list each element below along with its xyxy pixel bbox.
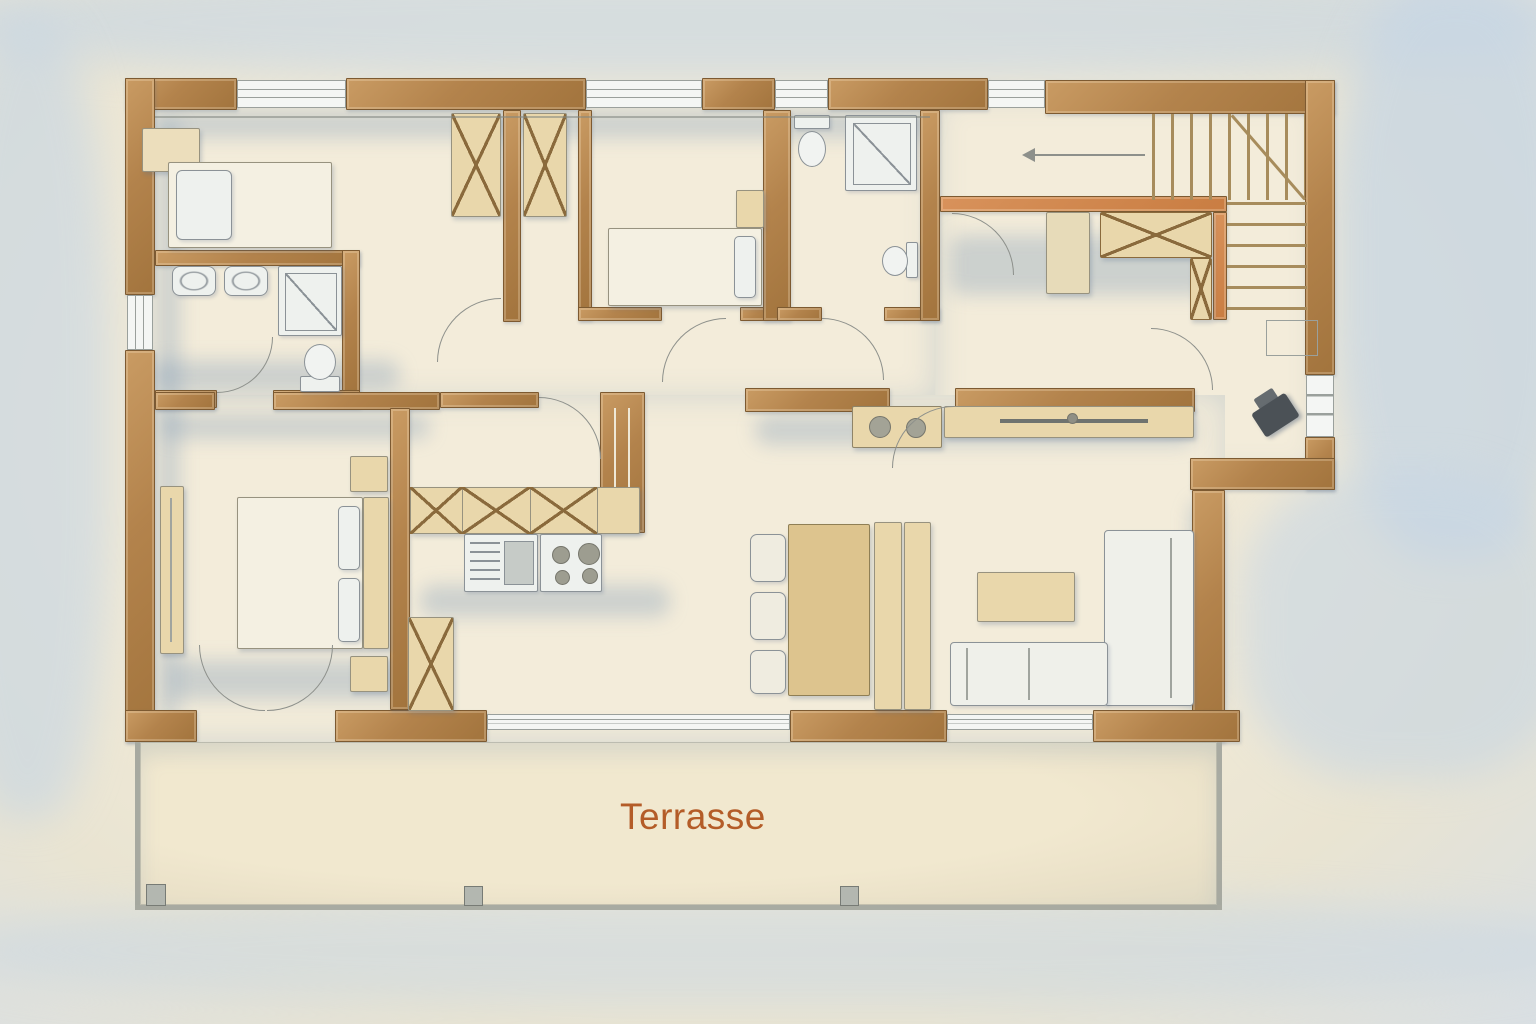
wall-bathroom2-bottom-a — [777, 307, 822, 321]
window-left — [127, 295, 153, 350]
floor-plan-canvas: Terrasse — [0, 0, 1536, 1024]
stair-direction-line — [1035, 154, 1145, 156]
sideboard-2 — [904, 522, 931, 710]
master-tv-board — [160, 486, 184, 654]
bath1-toilet-bowl — [304, 344, 336, 380]
master-tv-line — [170, 498, 172, 642]
bath1-sink-1 — [172, 266, 216, 296]
wall-exterior-left-2 — [125, 350, 155, 742]
wall-bedroom2-bathroom2 — [763, 110, 791, 321]
kitchen-upper-cabinet-2 — [462, 487, 531, 534]
wall-kitchen-top — [440, 392, 539, 408]
wash-shadow — [150, 360, 400, 390]
wall-master-top-b — [273, 392, 440, 410]
wardrobe-right — [523, 113, 567, 217]
wall-exterior-top-5 — [1045, 80, 1335, 114]
bedroom1-pillow — [176, 170, 232, 240]
stove-burner — [582, 568, 598, 584]
wall-exterior-right-3 — [1192, 490, 1225, 742]
wall-master-top-a — [155, 392, 215, 410]
sideboard-1 — [874, 522, 902, 710]
island-sink-1 — [869, 416, 891, 438]
tv-knob — [1067, 413, 1078, 424]
wall-closet-stub — [503, 110, 521, 322]
bedroom2-pillow — [734, 236, 756, 298]
stove-burner — [555, 570, 570, 585]
understair-closet — [1100, 212, 1212, 258]
wall-exterior-bottom-3 — [790, 710, 947, 742]
window-top-4 — [988, 80, 1045, 108]
understair-cabinet-narrow — [1190, 258, 1212, 320]
bedroom2-nightstand — [736, 190, 764, 228]
wall-accent-stair-vertical — [1213, 212, 1227, 320]
kitchen-upper-cabinet-1 — [410, 487, 463, 534]
bath1-sink-2 — [224, 266, 268, 296]
kitchen-upper-cabinet-3 — [530, 487, 598, 534]
window-top-3 — [775, 80, 828, 108]
wall-exterior-bottom-1 — [125, 710, 197, 742]
terrace-post — [146, 884, 166, 906]
wall-exterior-left-1 — [125, 78, 155, 295]
watercolor-wash-bottom — [0, 895, 1536, 1005]
dining-chair-2 — [750, 592, 786, 640]
wall-exterior-bottom-2 — [335, 710, 487, 742]
window-top-2 — [586, 80, 702, 108]
master-pillow-1 — [338, 506, 360, 570]
master-nightstand-bottom — [350, 656, 388, 692]
pencil-line-top — [155, 116, 930, 118]
terrace-post — [840, 886, 859, 906]
wall-exterior-top-2 — [346, 78, 586, 110]
wardrobe-left — [451, 113, 501, 217]
terrace-post — [464, 886, 483, 906]
kitchen-sink-basin — [504, 541, 534, 585]
sofa-chaise — [1104, 530, 1194, 706]
wall-vestibule-bottom — [1190, 458, 1335, 490]
bath1-shower-pan — [285, 273, 337, 331]
watercolor-wash-right-lower — [1240, 470, 1536, 780]
bath2-toilet-bowl — [798, 131, 826, 167]
wall-exterior-bottom-4 — [1093, 710, 1240, 742]
master-nightstand-top — [350, 456, 388, 492]
stair-treads-upper-flight — [1152, 114, 1305, 200]
wall-master-right — [390, 408, 410, 710]
sofa-armrest-line — [966, 648, 968, 700]
master-bed-headboard — [363, 497, 389, 649]
window-top-1 — [237, 80, 346, 108]
bath2-wc-bowl — [882, 246, 908, 276]
wall-bathroom2-right — [920, 110, 940, 321]
hall-cabinet — [1046, 212, 1090, 294]
stove-burner — [552, 546, 570, 564]
wall-exterior-top-3 — [702, 78, 775, 110]
terrace-label: Terrasse — [620, 796, 766, 838]
bath2-shower-pan — [853, 123, 911, 185]
wall-bath1-right — [342, 250, 360, 395]
wall-exterior-top-4 — [828, 78, 988, 110]
dining-table — [788, 524, 870, 696]
master-pillow-2 — [338, 578, 360, 642]
wall-bedroom2-bottom-a — [578, 307, 662, 321]
wall-bath1-top — [155, 250, 360, 266]
sofa-back-line — [1170, 538, 1172, 698]
sofa-cushion-line — [1028, 648, 1030, 700]
sliding-glass-door-2 — [947, 714, 1093, 730]
sliding-glass-door-1 — [487, 714, 790, 730]
vestibule-bench — [1266, 320, 1318, 356]
stair-treads-lower-flight — [1227, 202, 1307, 328]
dining-chair-1 — [750, 534, 786, 582]
front-door — [1306, 375, 1334, 437]
coffee-table — [977, 572, 1075, 622]
wall-bedroom2-left — [578, 110, 592, 320]
stair-direction-arrow — [1022, 148, 1035, 162]
kitchen-sink-drainer — [470, 542, 500, 584]
dining-chair-3 — [750, 650, 786, 694]
watercolor-wash-top — [0, 0, 1536, 80]
watercolor-wash-left — [0, 20, 110, 820]
kitchen-tall-cabinet — [408, 617, 454, 711]
stove-burner — [578, 543, 600, 565]
